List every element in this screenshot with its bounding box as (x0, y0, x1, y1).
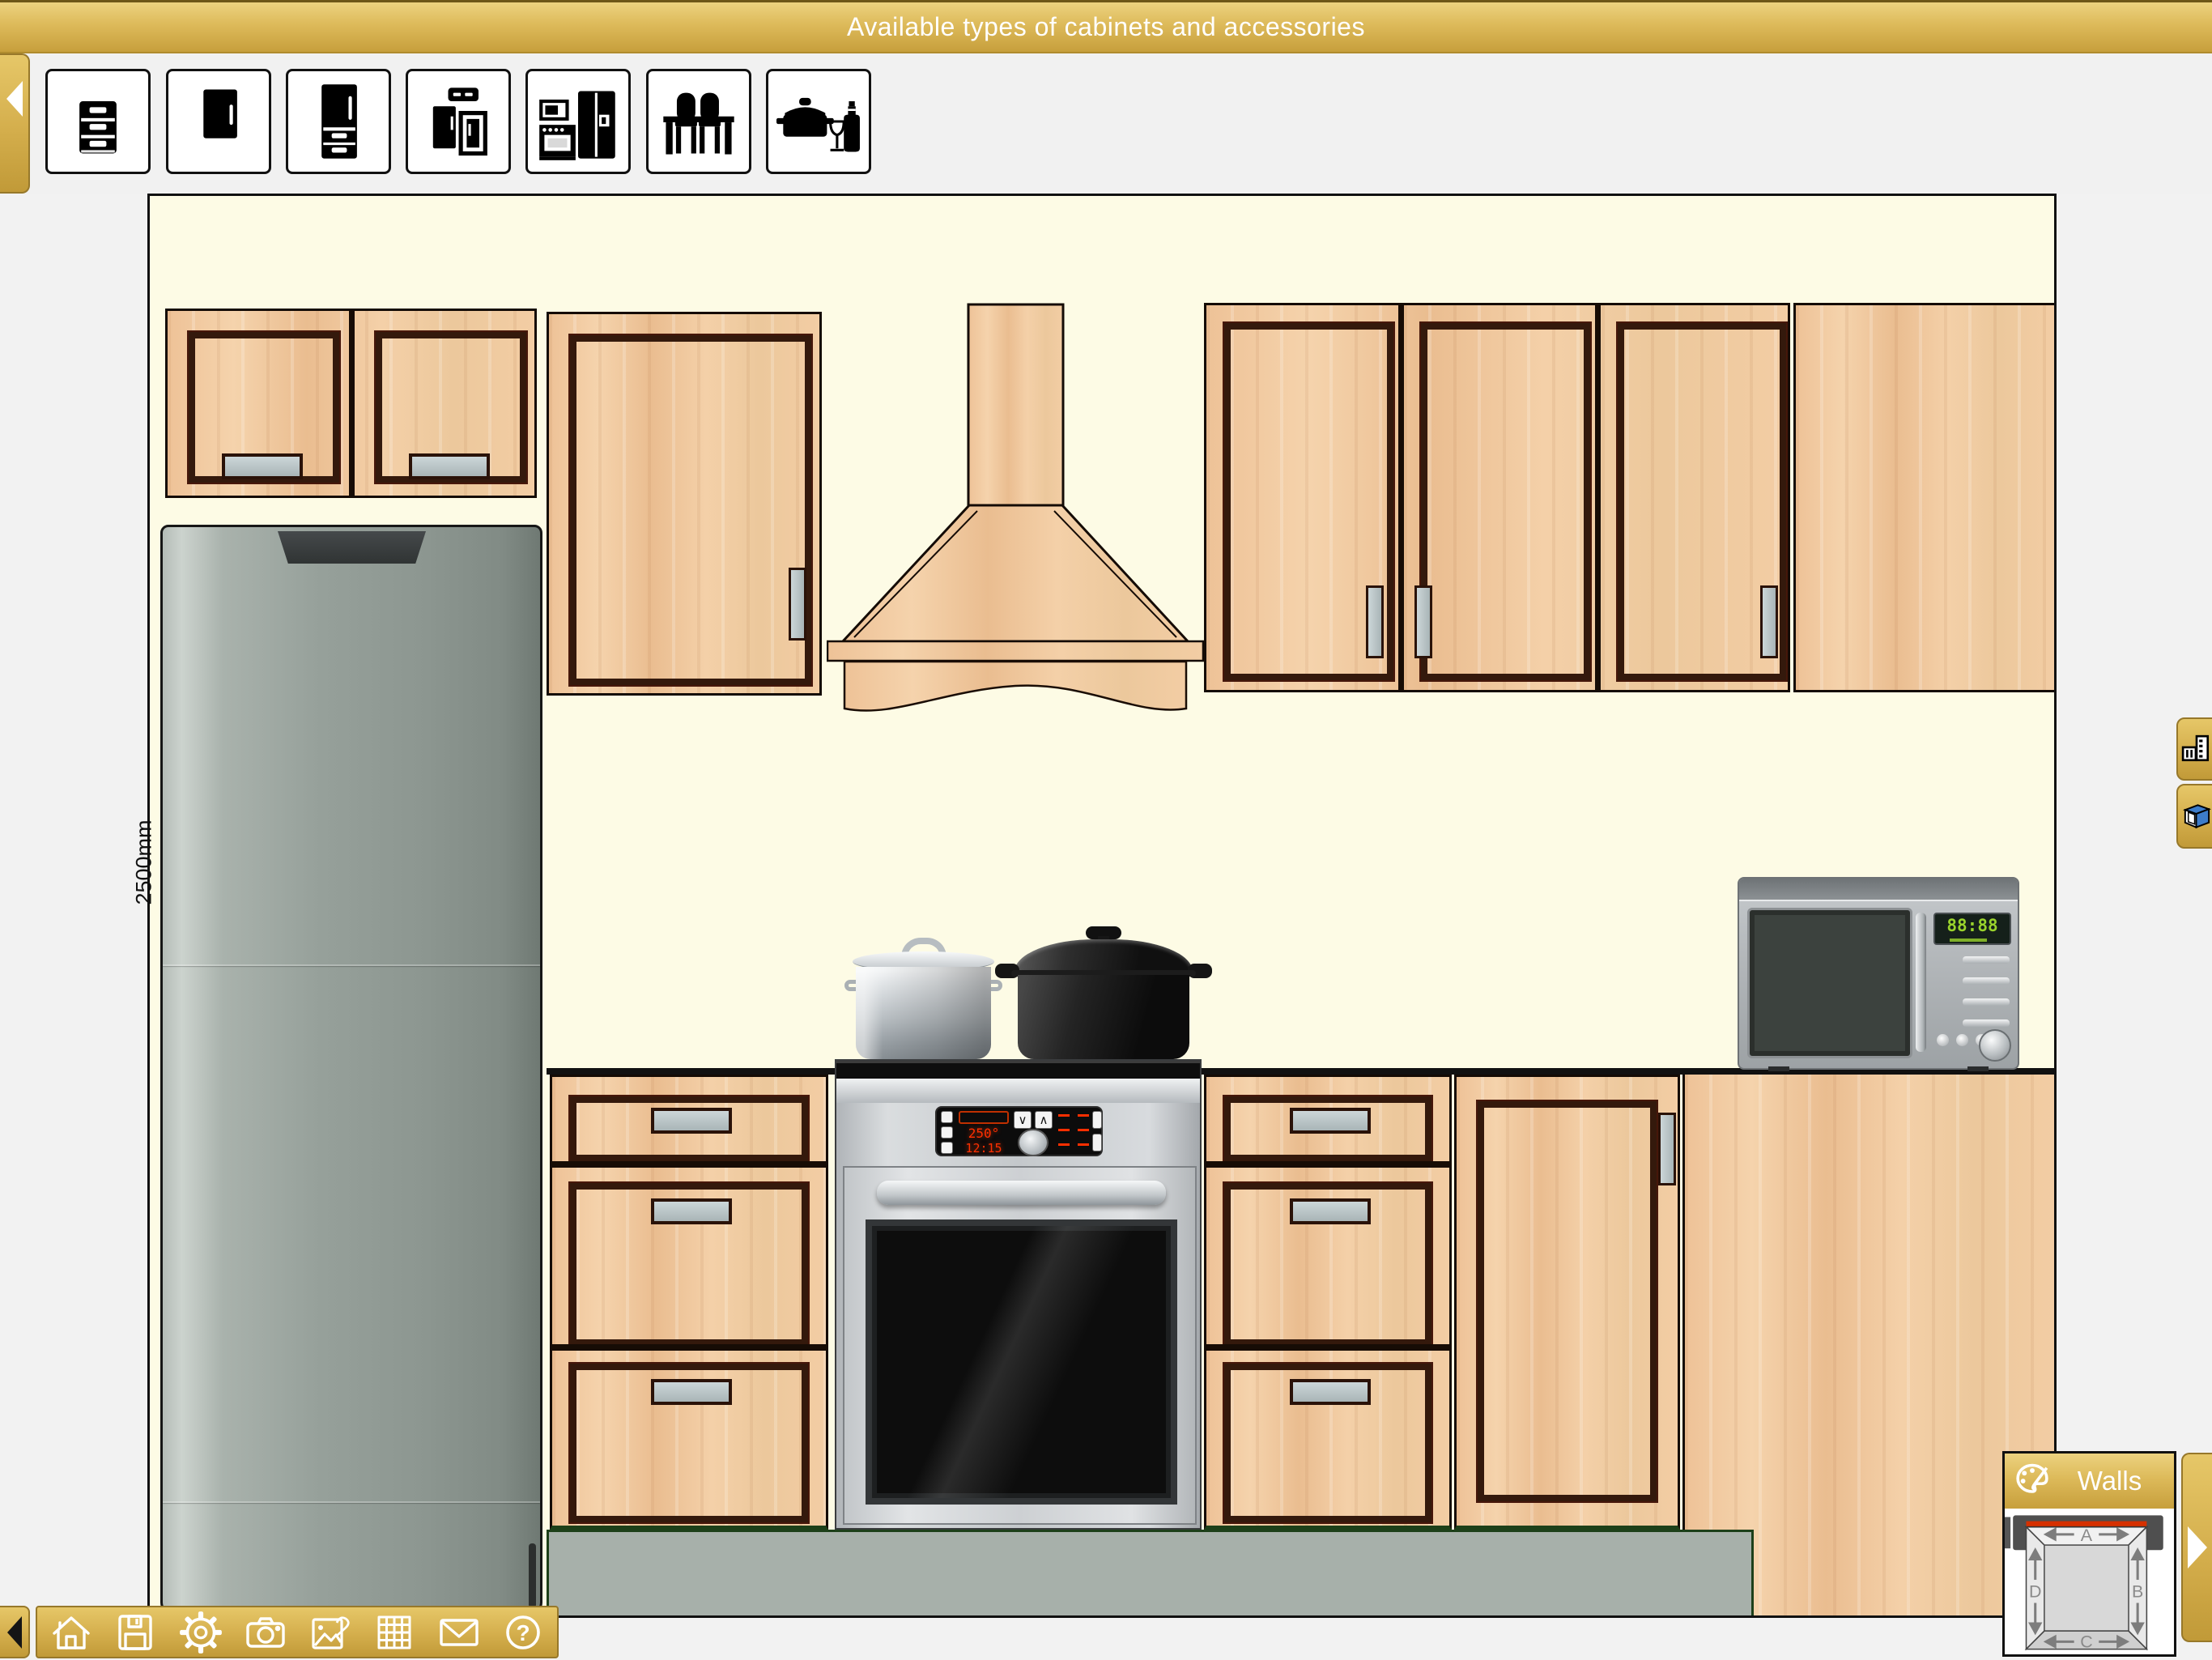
drawer-divider (552, 1344, 826, 1351)
oven-temperature: 250° (959, 1126, 1009, 1141)
drawer-handle (1290, 1198, 1371, 1224)
oven-down-button[interactable]: ∨ (1014, 1111, 1032, 1129)
walls-panel: Walls A D B C (2002, 1451, 2176, 1657)
door-divider (1595, 305, 1601, 690)
collapse-palette-tab[interactable] (0, 53, 30, 194)
oven-mode-button[interactable] (941, 1111, 953, 1123)
question-mark-icon: ? (516, 1620, 530, 1645)
wall-cabinet-tall[interactable] (547, 312, 822, 696)
door-handle (789, 568, 806, 641)
oven-display-frame (959, 1111, 1009, 1124)
walls-panel-title: Walls (2053, 1466, 2166, 1496)
wall-a-label: A (2081, 1526, 2093, 1545)
palette-icon (2011, 1460, 2053, 1502)
wall-d-label: D (2029, 1581, 2041, 1601)
chevron-left-icon (6, 81, 23, 117)
mail-button[interactable] (436, 1610, 482, 1655)
cabinet-palette-bar (0, 53, 2212, 194)
hood-pyramid (843, 505, 1188, 641)
microwave-handle (1916, 913, 1926, 1052)
oven-side-button[interactable] (1092, 1111, 1102, 1129)
screenshot-button[interactable] (243, 1610, 288, 1655)
microwave-button[interactable] (1963, 998, 2010, 1006)
oven-clock: 12:15 (959, 1141, 1009, 1156)
oven-door-handle[interactable] (877, 1181, 1166, 1205)
oven-range[interactable]: 250° 12:15 ∨ ∧ (835, 1059, 1202, 1530)
palette-item-cabinet-set[interactable] (406, 69, 511, 174)
room-floor (2044, 1545, 2129, 1631)
fridge[interactable] (160, 525, 542, 1614)
palette-item-dining-set[interactable] (646, 69, 751, 174)
oven-side-button[interactable] (1092, 1134, 1102, 1151)
door-handle (1366, 585, 1384, 658)
fridge-handle-recess (278, 531, 426, 564)
pot-lid (1015, 939, 1193, 972)
3d-view-button[interactable] (2176, 784, 2212, 849)
fridge-door-seam (163, 964, 540, 966)
microwave[interactable]: 88:88 (1738, 877, 2019, 1070)
oven-up-button[interactable]: ∧ (1035, 1111, 1053, 1129)
wall-cabinet-icon (177, 79, 261, 164)
dining-set-icon (657, 79, 741, 164)
wall-c-label: C (2080, 1632, 2092, 1652)
microwave-clock: 88:88 (1935, 914, 2010, 937)
microwave-top (1739, 879, 2018, 901)
elevation-view-icon (2181, 734, 2212, 764)
fridge-freezer-handle (529, 1543, 536, 1608)
walls-diagram[interactable]: A D B C (2005, 1509, 2174, 1656)
drawer-divider (552, 1161, 826, 1168)
range-hood[interactable] (827, 300, 1204, 731)
appliances-icon (536, 79, 620, 164)
drawer-divider (1206, 1161, 1449, 1168)
cooktop (836, 1061, 1200, 1079)
base-cabinet-drawers[interactable] (1204, 1075, 1452, 1530)
pot-body (856, 967, 991, 1059)
palette-item-appliances[interactable] (525, 69, 631, 174)
chevron-right-icon (2188, 1526, 2207, 1568)
microwave-foot (1967, 1066, 1989, 1071)
palette-item-tall-cabinet[interactable] (286, 69, 391, 174)
elevation-view-button[interactable] (2176, 717, 2212, 781)
cookware-accessories-icon (776, 79, 861, 164)
plinth[interactable] (547, 1530, 1754, 1618)
microwave-foot (1768, 1066, 1789, 1071)
wall-height-dimension: 2500mm (132, 819, 157, 904)
door-handle (1414, 585, 1432, 658)
oven-door[interactable] (843, 1166, 1197, 1525)
drawer-base-cabinet-icon (56, 79, 140, 164)
palette-item-drawer-base-cabinet[interactable] (45, 69, 151, 174)
grid-button[interactable] (372, 1610, 417, 1655)
oven-mode-button[interactable] (941, 1142, 953, 1154)
oven-control-panel[interactable]: 250° 12:15 ∨ ∧ (935, 1106, 1103, 1156)
drawer-handle (651, 1198, 732, 1224)
microwave-button[interactable] (1963, 956, 2010, 964)
cabinet-set-icon (416, 79, 500, 164)
door-handle (1658, 1113, 1676, 1185)
door-divider (349, 311, 355, 496)
tall-cabinet-icon (296, 79, 381, 164)
drawer-handle (1290, 1108, 1371, 1134)
drawer-handle (1290, 1379, 1371, 1405)
microwave-button-round[interactable] (1956, 1034, 1968, 1046)
hood-valance (844, 662, 1186, 711)
hood-rim (827, 641, 1203, 661)
wall-cabinet-triple[interactable] (1204, 303, 1790, 692)
base-cabinet-drawers[interactable] (550, 1075, 828, 1530)
palette-item-cookware[interactable] (766, 69, 871, 174)
black-pot[interactable] (1006, 926, 1201, 1059)
hood-chimney (968, 304, 1063, 507)
door-frame (1478, 1101, 1657, 1501)
drawer-handle (651, 1379, 732, 1405)
wall-cabinet-plain[interactable] (1793, 303, 2057, 692)
door-handle (409, 453, 490, 479)
fridge-freezer-seam (163, 1501, 540, 1503)
save-button[interactable] (113, 1610, 158, 1655)
door-divider (1398, 305, 1404, 690)
collapse-toolbar-tab[interactable] (0, 1606, 30, 1658)
palette-item-wall-cabinet[interactable] (166, 69, 271, 174)
image-attach-button[interactable] (308, 1610, 353, 1655)
microwave-display: 88:88 (1933, 913, 2011, 945)
pot-body (1018, 975, 1189, 1059)
door-frame (570, 335, 811, 685)
help-button[interactable]: ? (500, 1610, 546, 1655)
oven-touch-icons[interactable] (1058, 1113, 1091, 1153)
microwave-window (1747, 908, 1912, 1058)
settings-button[interactable] (177, 1609, 224, 1656)
door-frame (1421, 323, 1590, 680)
page-title: Available types of cabinets and accessor… (847, 12, 1365, 42)
microwave-button-round[interactable] (1937, 1034, 1949, 1046)
oven-window (866, 1219, 1177, 1505)
steel-pot[interactable] (851, 938, 996, 1059)
kitchen-canvas[interactable]: 250° 12:15 ∨ ∧ (147, 194, 2057, 1618)
3d-view-icon (2180, 800, 2212, 832)
drawer-handle (651, 1108, 732, 1134)
base-cabinet-door[interactable] (1454, 1075, 1680, 1530)
home-button[interactable] (49, 1610, 94, 1655)
bottom-toolbar: ? (36, 1606, 559, 1658)
microwave-button[interactable] (1963, 1019, 2010, 1027)
cooktop-trim (836, 1079, 1200, 1103)
walls-panel-header[interactable]: Walls (2005, 1454, 2174, 1509)
oven-mode-button[interactable] (941, 1126, 953, 1139)
oven-knob[interactable] (1018, 1129, 1049, 1156)
door-handle (1760, 585, 1778, 658)
wall-cabinet-double[interactable] (165, 309, 537, 498)
wall-b-label: B (2132, 1581, 2143, 1601)
expand-panel-tab[interactable] (2181, 1453, 2212, 1642)
chevron-left-icon (7, 1616, 22, 1649)
microwave-knob[interactable] (1979, 1029, 2011, 1062)
title-bar: Available types of cabinets and accessor… (0, 0, 2212, 53)
microwave-button[interactable] (1963, 977, 2010, 985)
drawer-divider (1206, 1344, 1449, 1351)
door-handle (222, 453, 303, 479)
